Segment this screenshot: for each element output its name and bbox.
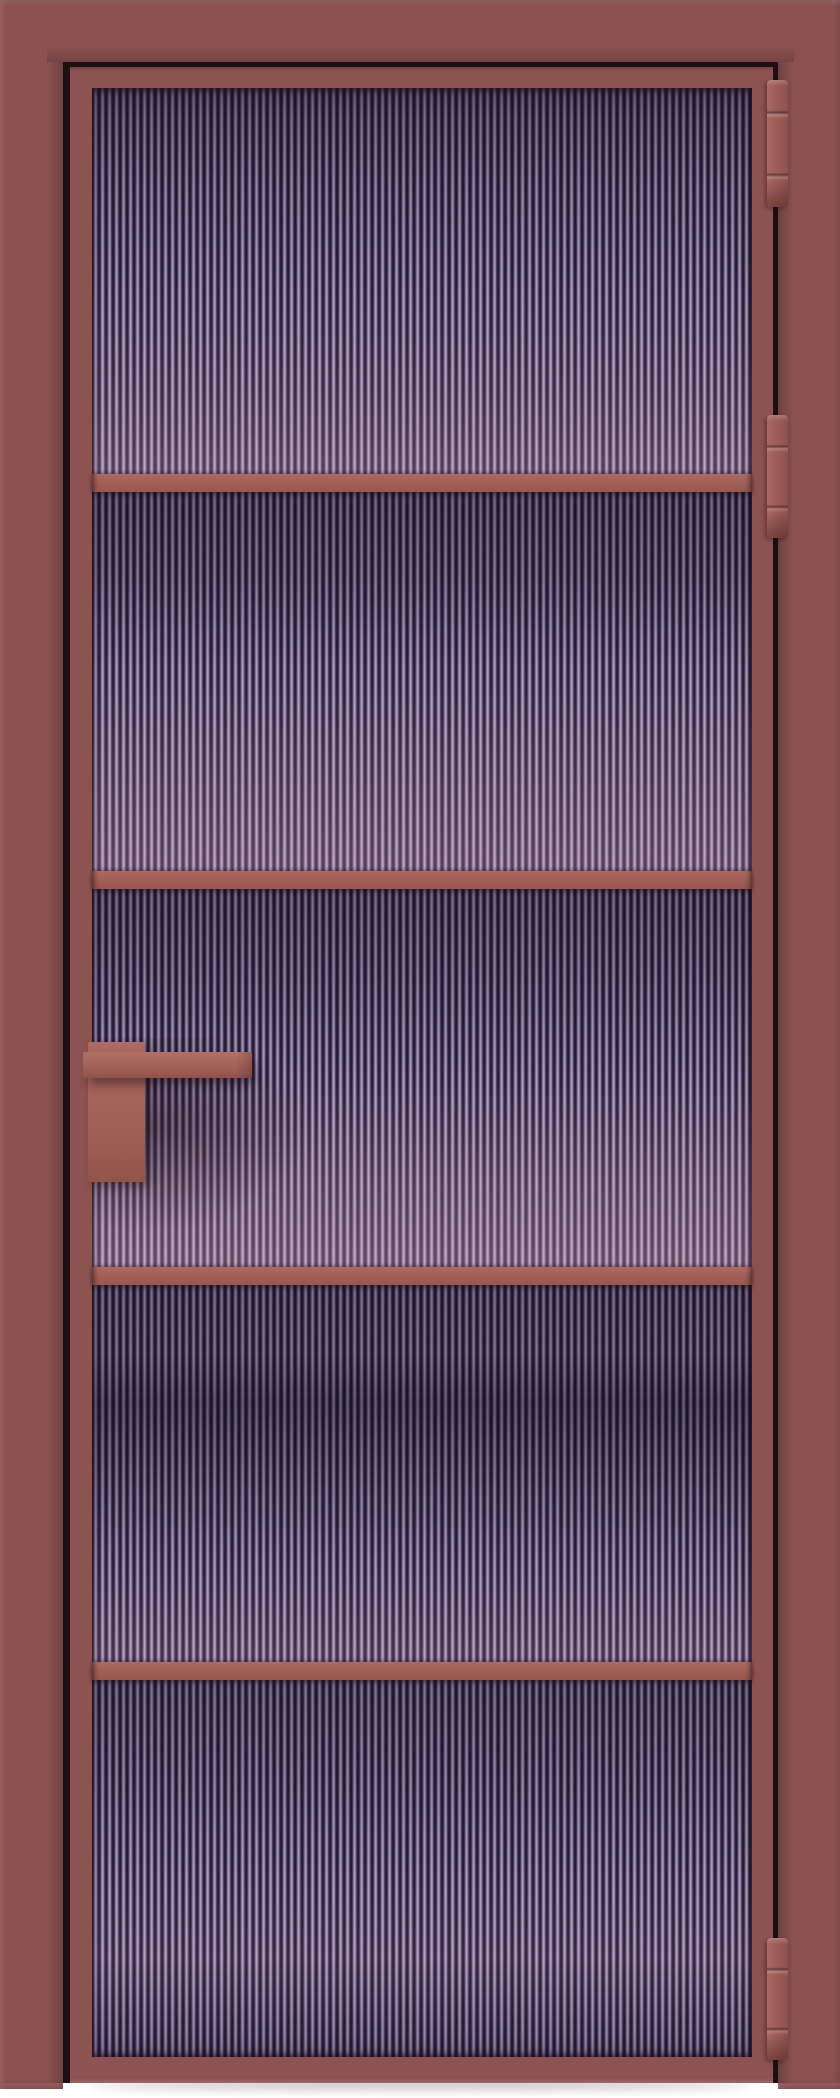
glass-divider-bar bbox=[92, 1267, 752, 1285]
glass-divider-bar bbox=[92, 1662, 752, 1680]
door-hinge bbox=[767, 1938, 788, 2060]
frame-left-reveal-shading bbox=[47, 62, 63, 2083]
casing-left-foot bbox=[0, 2083, 63, 2089]
door-handle-lever bbox=[83, 1052, 252, 1078]
door-hinge bbox=[767, 415, 788, 538]
frame-top-reveal-shading bbox=[47, 46, 794, 62]
door-hinge bbox=[767, 80, 788, 207]
glass-divider-bar bbox=[92, 474, 752, 492]
frame-right-reveal-shading bbox=[778, 62, 794, 2083]
glass-divider-bar bbox=[92, 871, 752, 889]
bottom-rail-highlight bbox=[70, 2078, 773, 2083]
casing-right-foot bbox=[778, 2083, 840, 2089]
